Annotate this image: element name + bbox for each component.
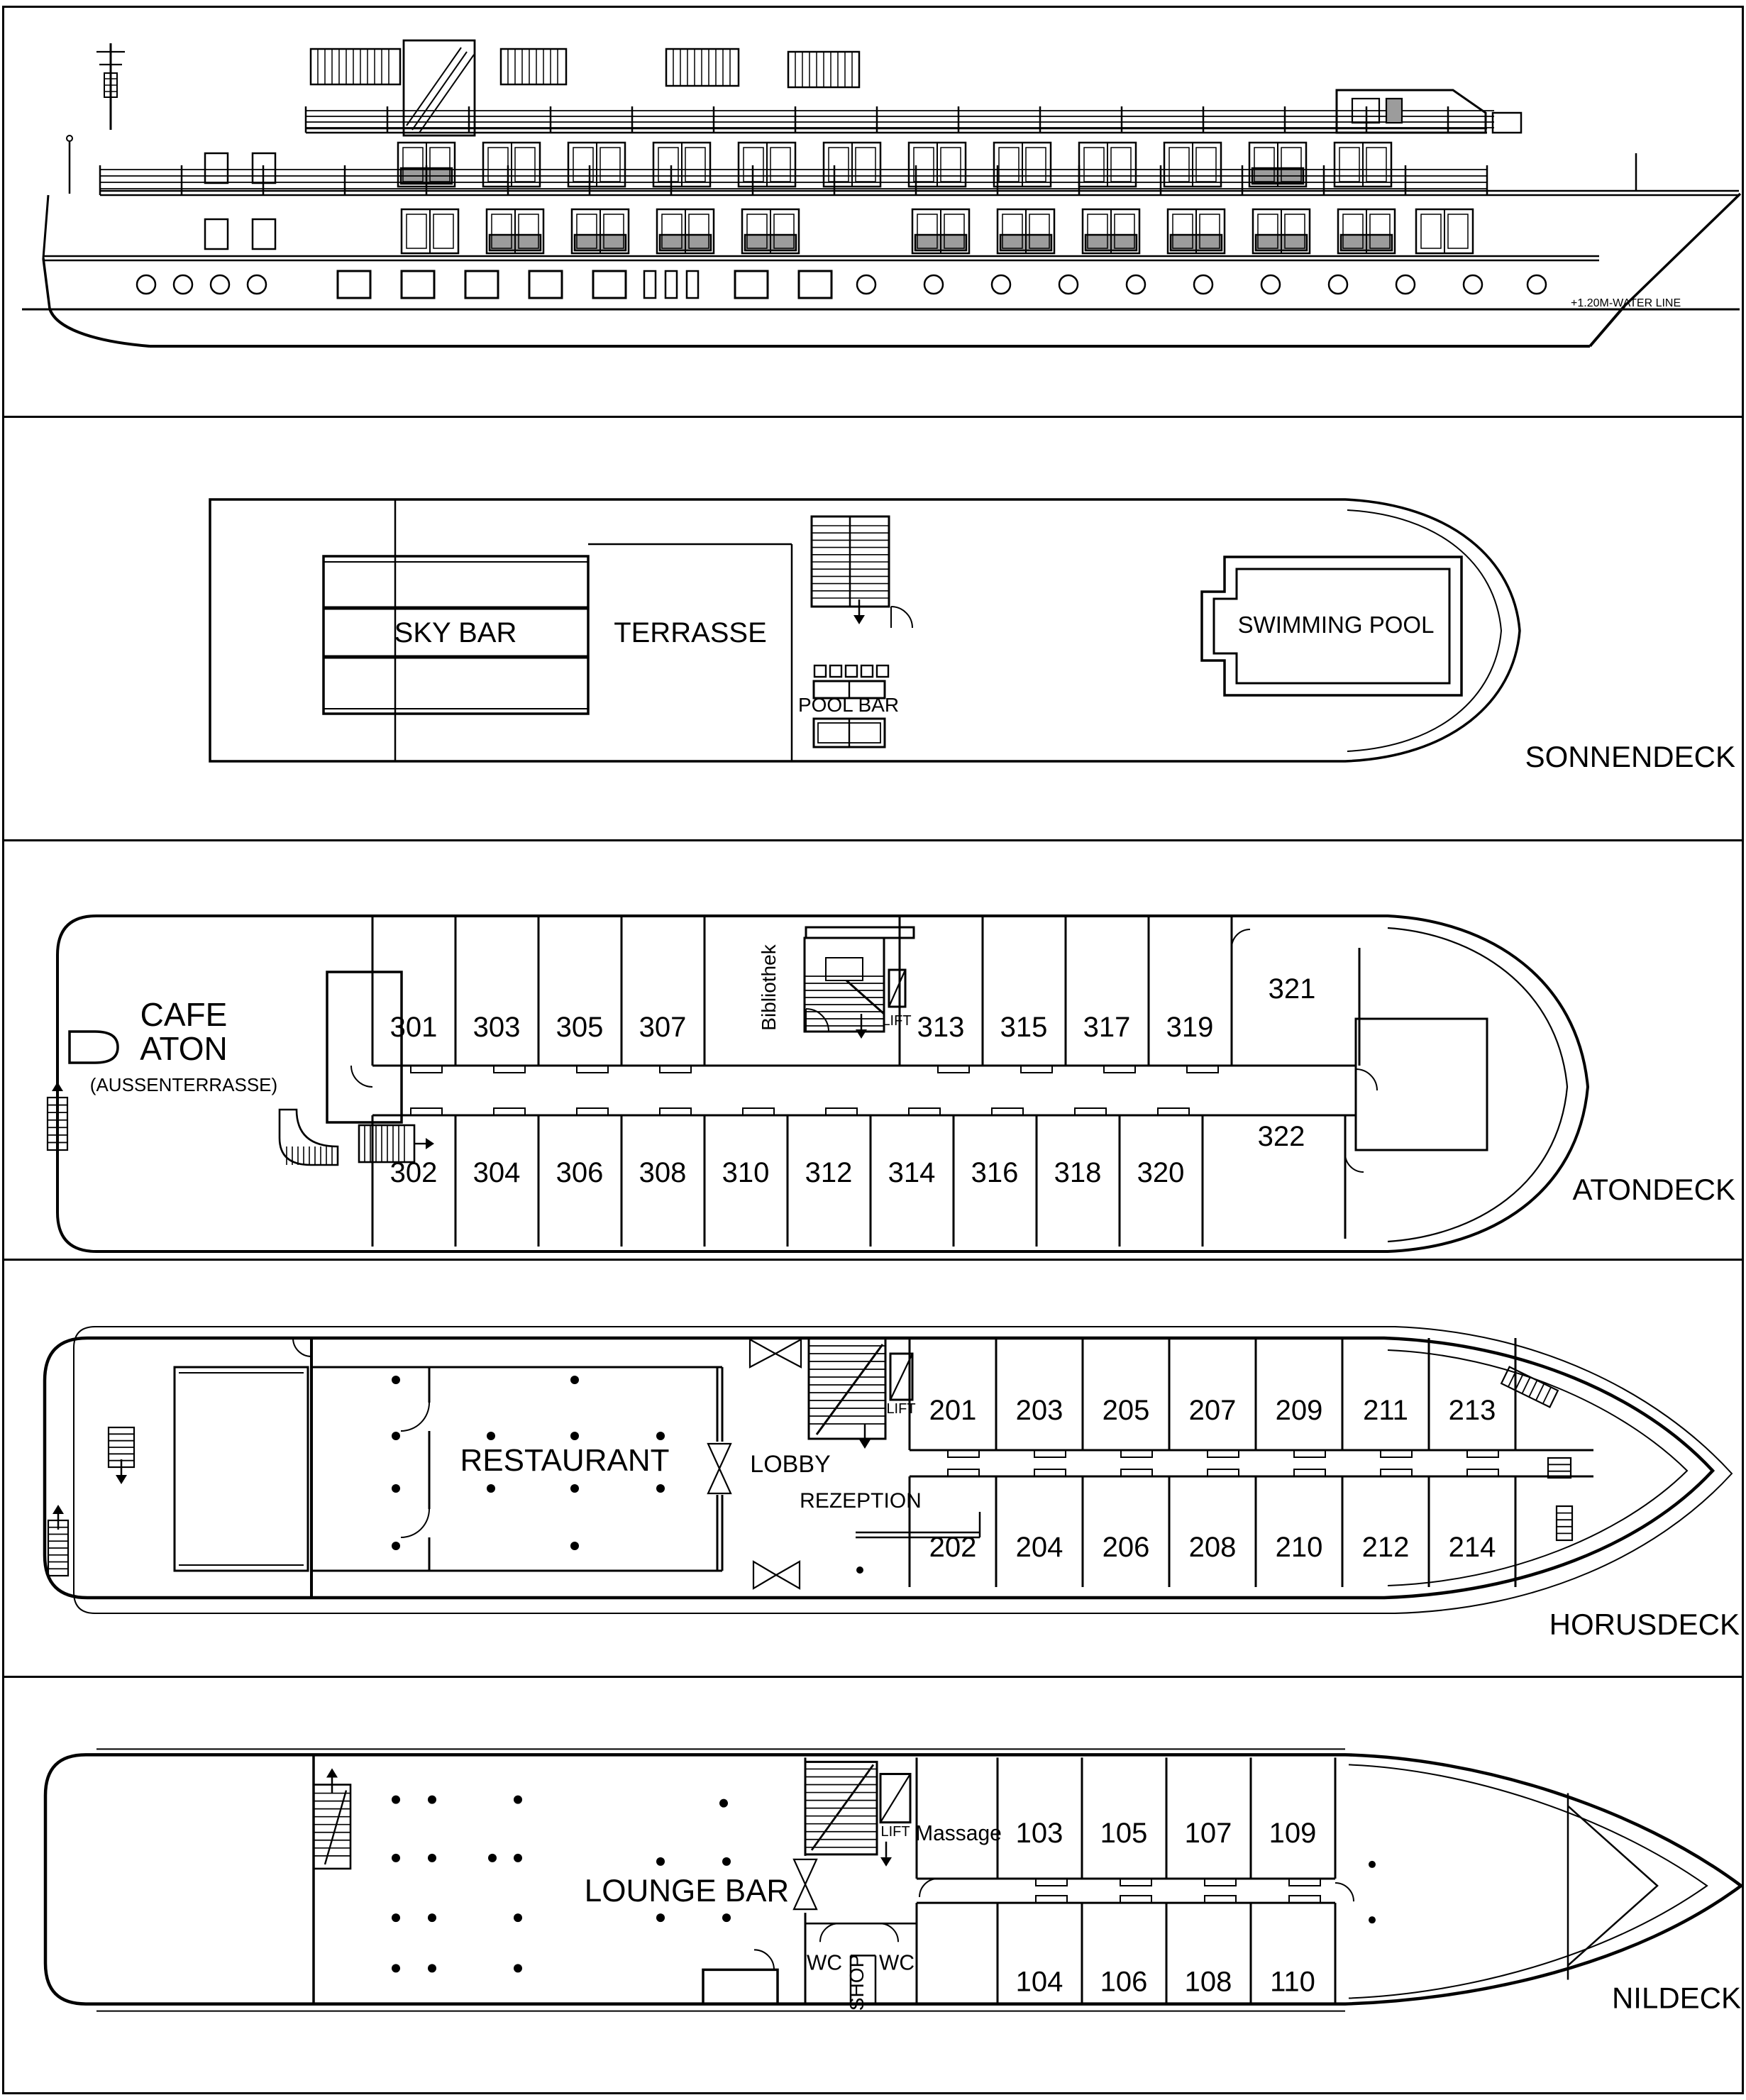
terrasse-area: TERRASSE xyxy=(588,544,792,761)
cafe-aton-label: ATON xyxy=(140,1030,228,1067)
stern-underwater xyxy=(50,309,150,346)
table-dot xyxy=(392,1376,400,1384)
bar-stool-icon xyxy=(846,665,857,677)
table-dot xyxy=(392,1484,400,1493)
cabins: 103105107109104106108110 xyxy=(998,1757,1335,2002)
cabin-number: 209 xyxy=(1276,1395,1323,1426)
table-dot xyxy=(1369,1861,1376,1868)
cabin-number: 211 xyxy=(1363,1395,1408,1426)
corridor xyxy=(910,1450,1593,1476)
porthole-icon xyxy=(1194,275,1212,294)
cabin-number: 317 xyxy=(1083,1012,1131,1043)
line xyxy=(419,55,474,133)
table-dot xyxy=(656,1857,665,1866)
porthole-icon xyxy=(137,275,155,294)
double-door-icon xyxy=(794,1859,817,1909)
small-window xyxy=(253,219,275,249)
lift-label: LIFT xyxy=(880,1824,910,1840)
hull-window xyxy=(402,271,434,298)
waterline-label: +1.20M-WATER LINE xyxy=(1571,297,1681,309)
cabin-number: 301 xyxy=(390,1012,438,1043)
roof-structure xyxy=(666,49,739,86)
arrow-head-icon xyxy=(853,615,865,624)
massage-label: Massage xyxy=(915,1822,1002,1845)
rect xyxy=(311,49,400,84)
cabin-number: 322 xyxy=(1258,1121,1305,1152)
door-arc xyxy=(919,1879,938,1897)
lounge-step-wall xyxy=(703,1969,778,2002)
cabin-number: 212 xyxy=(1362,1532,1410,1563)
wc-label: WC xyxy=(879,1951,915,1974)
shop-label: SHOP xyxy=(846,1955,868,2011)
porthole-icon xyxy=(211,275,229,294)
atondeck-plan: 3013033053073133153173193213023043063083… xyxy=(4,841,1742,1259)
funnel xyxy=(1493,113,1521,133)
restaurant-area: RESTAURANT xyxy=(392,1376,669,1550)
double-door-icon xyxy=(708,1444,731,1493)
rezeption-label: REZEPTION xyxy=(800,1489,922,1513)
flag-pole-icon xyxy=(67,136,72,194)
ladder-icon xyxy=(1501,1367,1558,1408)
door-leaf xyxy=(708,1444,731,1469)
cabins: 3013033053073133153173193213023043063083… xyxy=(372,916,1359,1247)
cabin-number: 204 xyxy=(1016,1532,1063,1563)
table-dot xyxy=(719,1799,728,1808)
porthole-icon xyxy=(1329,275,1347,294)
sky-bar-label: SKY BAR xyxy=(394,617,517,648)
lift-shaft-icon xyxy=(889,970,905,1007)
door-arc xyxy=(401,1403,429,1431)
door-arc xyxy=(891,607,912,628)
stairs-icon xyxy=(314,1768,350,1868)
small-window xyxy=(205,219,228,249)
stairs-icon xyxy=(812,516,912,628)
table-dot xyxy=(570,1484,579,1493)
table-dot xyxy=(488,1854,497,1862)
cabin-number: 207 xyxy=(1189,1395,1237,1426)
atondeck-panel: 3013033053073133153173193213023043063083… xyxy=(4,841,1742,1261)
table-dot xyxy=(392,1432,400,1440)
direction-arrow-icon xyxy=(53,1505,64,1530)
cabin-number: 107 xyxy=(1185,1818,1232,1849)
path xyxy=(750,1339,775,1367)
table-dot xyxy=(487,1484,495,1493)
rect xyxy=(175,1367,308,1571)
door-arc xyxy=(1232,929,1250,948)
hull-window xyxy=(735,271,768,298)
cabin-number: 316 xyxy=(971,1157,1019,1188)
roof-structure xyxy=(311,49,400,84)
table-dot xyxy=(514,1854,522,1862)
line xyxy=(412,52,467,130)
table-dot xyxy=(392,1542,400,1550)
deck-label-nildeck: NILDECK xyxy=(1612,1982,1741,2015)
table-dot xyxy=(428,1913,436,1922)
cabin-number: 206 xyxy=(1103,1532,1150,1563)
cabin-number: 213 xyxy=(1449,1395,1496,1426)
ladder-icon xyxy=(1557,1506,1572,1540)
porthole-icon xyxy=(924,275,943,294)
cabin-number: 310 xyxy=(722,1157,770,1188)
porthole-icon xyxy=(1396,275,1415,294)
stern-mast-icon xyxy=(96,43,125,130)
cafe-aton-area: CAFEATON(AUSSENTERRASSE) xyxy=(70,996,277,1095)
hull-window xyxy=(465,271,498,298)
cabin-number: 108 xyxy=(1185,1966,1232,1997)
sky-bar-room: SKY BAR xyxy=(324,556,588,714)
hull-window xyxy=(593,271,626,298)
cabin-number: 202 xyxy=(929,1532,977,1563)
door-arc xyxy=(1345,1154,1364,1172)
cabin-number: 105 xyxy=(1100,1818,1148,1849)
wc-label: WC xyxy=(807,1951,842,1974)
cabin-number: 307 xyxy=(639,1012,687,1043)
direction-arrow-icon xyxy=(52,1082,63,1107)
door-leaf xyxy=(708,1469,731,1493)
arrow-head-icon xyxy=(859,1439,871,1449)
horusdeck-panel: RESTAURANTLIFTLOBBYREZEPTION201203205207… xyxy=(4,1261,1742,1678)
cabin-number: 312 xyxy=(805,1157,853,1188)
hull-window xyxy=(338,271,370,298)
pool-bar-area: POOL BAR xyxy=(798,665,899,747)
corridor xyxy=(372,1066,1377,1115)
swimming-pool: SWIMMING POOL xyxy=(1202,557,1462,695)
direction-arrow-icon xyxy=(859,1424,871,1449)
restaurant-label: RESTAURANT xyxy=(460,1443,670,1478)
cabin-number: 110 xyxy=(1270,1966,1315,1997)
door-arc xyxy=(351,1066,372,1087)
hull-window xyxy=(687,271,698,298)
atondeck-drawing: 3013033053073133153173193213023043063083… xyxy=(48,916,1735,1251)
door-arc xyxy=(293,1338,311,1356)
nildeck-drawing: LOUNGE BARLIFTWCWCSHOPMassage10310510710… xyxy=(45,1749,1741,2014)
table-dot xyxy=(656,1484,665,1493)
sonnendeck-plan: SKY BARTERRASSEPOOL BARSWIMMING POOLSONN… xyxy=(4,418,1742,839)
cabin-number: 315 xyxy=(1000,1012,1048,1043)
sonnendeck-panel: SKY BARTERRASSEPOOL BARSWIMMING POOLSONN… xyxy=(4,418,1742,841)
stair-tower xyxy=(404,40,475,136)
ladder-icon xyxy=(109,1427,134,1484)
hull-window xyxy=(665,271,677,298)
rect xyxy=(501,49,566,84)
side-elevation-drawing: +1.20M-WATER LINE xyxy=(4,8,1742,416)
porthole-icon xyxy=(1059,275,1078,294)
direction-arrow-icon xyxy=(853,599,865,624)
circle xyxy=(67,136,72,141)
bow-room xyxy=(1356,1019,1487,1150)
direction-arrow-icon xyxy=(880,1842,892,1867)
bar-stool-icon xyxy=(814,665,826,677)
direction-arrow-icon xyxy=(326,1768,338,1793)
table-dot xyxy=(392,1913,400,1922)
rect xyxy=(826,958,863,980)
door-arc xyxy=(401,1509,429,1537)
stern-profile xyxy=(43,258,50,309)
swimming-pool-label: SWIMMING POOL xyxy=(1238,612,1435,638)
table-dot xyxy=(570,1542,579,1550)
table-dot xyxy=(428,1964,436,1972)
lift-label: LIFT xyxy=(882,1013,911,1029)
porthole-icon xyxy=(1464,275,1482,294)
line xyxy=(1536,1383,1544,1400)
line xyxy=(1543,1387,1551,1403)
bow-underwater xyxy=(1590,306,1625,346)
door-arc xyxy=(820,1923,839,1942)
arrow-head-icon xyxy=(116,1475,127,1484)
table-dot xyxy=(428,1796,436,1804)
stairs-icon xyxy=(280,1110,338,1165)
cabin-number: 321 xyxy=(1269,973,1316,1005)
ship-side-elevation: +1.20M-WATER LINE xyxy=(22,40,1740,346)
table-dot xyxy=(514,1913,522,1922)
porthole-icon xyxy=(992,275,1010,294)
lobby-label: LOBBY xyxy=(750,1451,830,1478)
stairs-icon xyxy=(809,1338,885,1449)
pantry-wall xyxy=(401,1367,429,1571)
table-dot xyxy=(428,1854,436,1862)
path xyxy=(753,1562,776,1588)
line xyxy=(817,1344,883,1435)
porthole-icon xyxy=(1261,275,1280,294)
terrasse-label: TERRASSE xyxy=(614,617,767,648)
bar-stool-icon xyxy=(830,665,841,677)
ladder-icon xyxy=(1548,1458,1571,1478)
table-dot xyxy=(1369,1916,1376,1923)
nildeck-panel: LOUNGE BARLIFTWCWCSHOPMassage10310510710… xyxy=(4,1678,1742,2092)
wheelhouse xyxy=(1337,90,1521,133)
lounge-bar-label: LOUNGE BAR xyxy=(585,1874,789,1908)
bow-stem xyxy=(1625,194,1740,306)
atondeck-windows xyxy=(205,143,1391,187)
table-dot xyxy=(392,1796,400,1804)
cabin-number: 103 xyxy=(1016,1818,1063,1849)
cabin-number: 305 xyxy=(556,1012,604,1043)
porthole-icon xyxy=(248,275,266,294)
cabin-number: 109 xyxy=(1269,1818,1317,1849)
door-arc xyxy=(1335,1883,1354,1901)
porthole-icon xyxy=(1127,275,1145,294)
table-dot xyxy=(570,1432,579,1440)
hull-outline xyxy=(57,916,1588,1251)
deck-label-horusdeck: HORUSDECK xyxy=(1549,1608,1740,1641)
arrow-head-icon xyxy=(326,1768,338,1777)
cabin-number: 318 xyxy=(1054,1157,1102,1188)
window-pane xyxy=(1448,214,1468,248)
arrow-head-icon xyxy=(856,1029,867,1039)
cabin-number: 319 xyxy=(1166,1012,1214,1043)
cabin-number: 313 xyxy=(917,1012,965,1043)
door-arc xyxy=(880,1923,898,1942)
galley-room xyxy=(175,1367,308,1571)
line xyxy=(812,1764,873,1850)
hull-window xyxy=(799,271,831,298)
stair-lintel xyxy=(806,927,914,938)
rect xyxy=(666,49,739,86)
arrow-head-icon xyxy=(426,1138,434,1149)
line xyxy=(1529,1381,1537,1397)
stairs-icon xyxy=(805,938,884,1039)
bar-counter xyxy=(70,1032,118,1063)
hull-window xyxy=(644,271,656,298)
arrow-head-icon xyxy=(53,1505,64,1514)
arrow-head-icon xyxy=(880,1857,892,1867)
rect xyxy=(1501,1367,1558,1408)
table-dot xyxy=(656,1432,665,1440)
wheelhouse-window xyxy=(1386,99,1402,123)
porthole-icon xyxy=(1527,275,1546,294)
cabin-number: 306 xyxy=(556,1157,604,1188)
porthole-icon xyxy=(857,275,875,294)
window-pane xyxy=(407,214,426,248)
side-elevation-panel: +1.20M-WATER LINE xyxy=(4,8,1742,418)
table-dot xyxy=(722,1913,731,1922)
table-dot xyxy=(656,1913,665,1922)
cabin-number: 314 xyxy=(888,1157,936,1188)
line xyxy=(889,970,905,1007)
porthole-icon xyxy=(174,275,192,294)
cafe-aton-label: CAFE xyxy=(140,996,228,1033)
curved-stair xyxy=(280,1110,338,1165)
horusdeck-drawing: RESTAURANTLIFTLOBBYREZEPTION201203205207… xyxy=(45,1327,1740,1641)
stern-profile xyxy=(43,195,48,258)
cabin-number: 203 xyxy=(1016,1395,1063,1426)
line xyxy=(1522,1377,1530,1393)
direction-arrow-icon xyxy=(116,1459,127,1484)
rect xyxy=(1548,1458,1571,1478)
stair-vestibule xyxy=(327,972,402,1122)
cabins: 2012032052072092112132022042062082102122… xyxy=(910,1338,1515,1587)
hull-inner-line xyxy=(1388,928,1567,1242)
lift-shaft-icon xyxy=(880,1774,910,1822)
cabin-number: 308 xyxy=(639,1157,687,1188)
roof-structure xyxy=(501,49,566,84)
cabin-number: 104 xyxy=(1016,1966,1063,1997)
lounge-bar-area: LOUNGE BAR xyxy=(392,1796,789,1973)
door-arc xyxy=(1356,1069,1377,1090)
rect xyxy=(805,938,884,1032)
path xyxy=(775,1339,801,1367)
rect xyxy=(1557,1506,1572,1540)
cabin-number: 304 xyxy=(473,1157,521,1188)
table-dot xyxy=(722,1857,731,1866)
cabin-number: 210 xyxy=(1276,1532,1323,1563)
cabin-number: 208 xyxy=(1189,1532,1237,1563)
table-dot xyxy=(392,1964,400,1972)
deck-label-atondeck: ATONDECK xyxy=(1573,1173,1735,1206)
aussenterrasse-label: (AUSSENTERRASSE) xyxy=(90,1074,277,1095)
bar-stool-icon xyxy=(861,665,873,677)
hull-windows xyxy=(137,271,1546,298)
table-dot xyxy=(570,1376,579,1384)
bibliothek-label: Bibliothek xyxy=(758,944,780,1030)
cabin-number: 214 xyxy=(1449,1532,1496,1563)
path xyxy=(776,1562,800,1588)
line xyxy=(407,48,461,126)
stairs-icon xyxy=(805,1762,892,1867)
ladder-icon xyxy=(48,1505,68,1576)
lift-label: LIFT xyxy=(886,1401,915,1417)
window-pane xyxy=(1421,214,1441,248)
cabin-number: 303 xyxy=(473,1012,521,1043)
arrow-head-icon xyxy=(52,1082,63,1091)
pool-bar-label: POOL BAR xyxy=(798,694,899,716)
bar-stool-icon xyxy=(877,665,888,677)
hull-inner-line xyxy=(1388,1350,1687,1586)
door-leaf xyxy=(794,1859,817,1884)
cabin-number: 320 xyxy=(1137,1157,1185,1188)
cabin-number: 106 xyxy=(1100,1966,1148,1997)
sonnendeck-drawing: SKY BARTERRASSEPOOL BARSWIMMING POOLSONN… xyxy=(210,499,1735,773)
corridor xyxy=(917,1879,1354,1903)
path xyxy=(1337,90,1486,133)
horusdeck-plan: RESTAURANTLIFTLOBBYREZEPTION201203205207… xyxy=(4,1261,1742,1676)
hull-window xyxy=(529,271,562,298)
table-dot xyxy=(514,1796,522,1804)
table-dot xyxy=(514,1964,522,1972)
door-leaf xyxy=(794,1884,817,1909)
table-dot xyxy=(487,1432,495,1440)
nildeck-plan: LOUNGE BARLIFTWCWCSHOPMassage10310510710… xyxy=(4,1678,1742,2092)
door-arc xyxy=(754,1950,774,1969)
roof-structure xyxy=(788,52,859,87)
small-window xyxy=(205,153,228,183)
horusdeck-windows xyxy=(205,209,1473,253)
table-dot xyxy=(392,1854,400,1862)
deck-label-sonnendeck: SONNENDECK xyxy=(1525,740,1735,773)
line xyxy=(880,1774,910,1822)
window-pane xyxy=(433,214,453,248)
cabin-number: 201 xyxy=(929,1395,977,1426)
cabin-number: 205 xyxy=(1103,1395,1150,1426)
table-dot xyxy=(856,1566,863,1574)
deckplan-sheet: +1.20M-WATER LINE SKY BARTERRASSEPOOL BA… xyxy=(2,6,1744,2094)
